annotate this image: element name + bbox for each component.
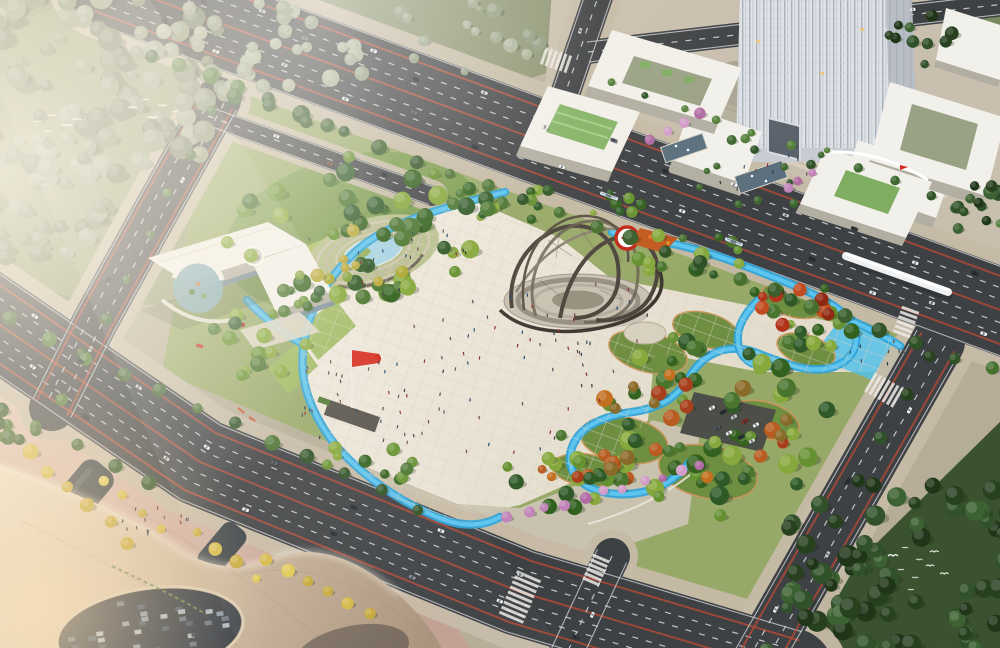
warm-tint [0, 0, 1000, 648]
aerial-park-rendering [0, 0, 1000, 648]
rendering-canvas [0, 0, 1000, 648]
atmosphere-haze [0, 0, 1000, 648]
